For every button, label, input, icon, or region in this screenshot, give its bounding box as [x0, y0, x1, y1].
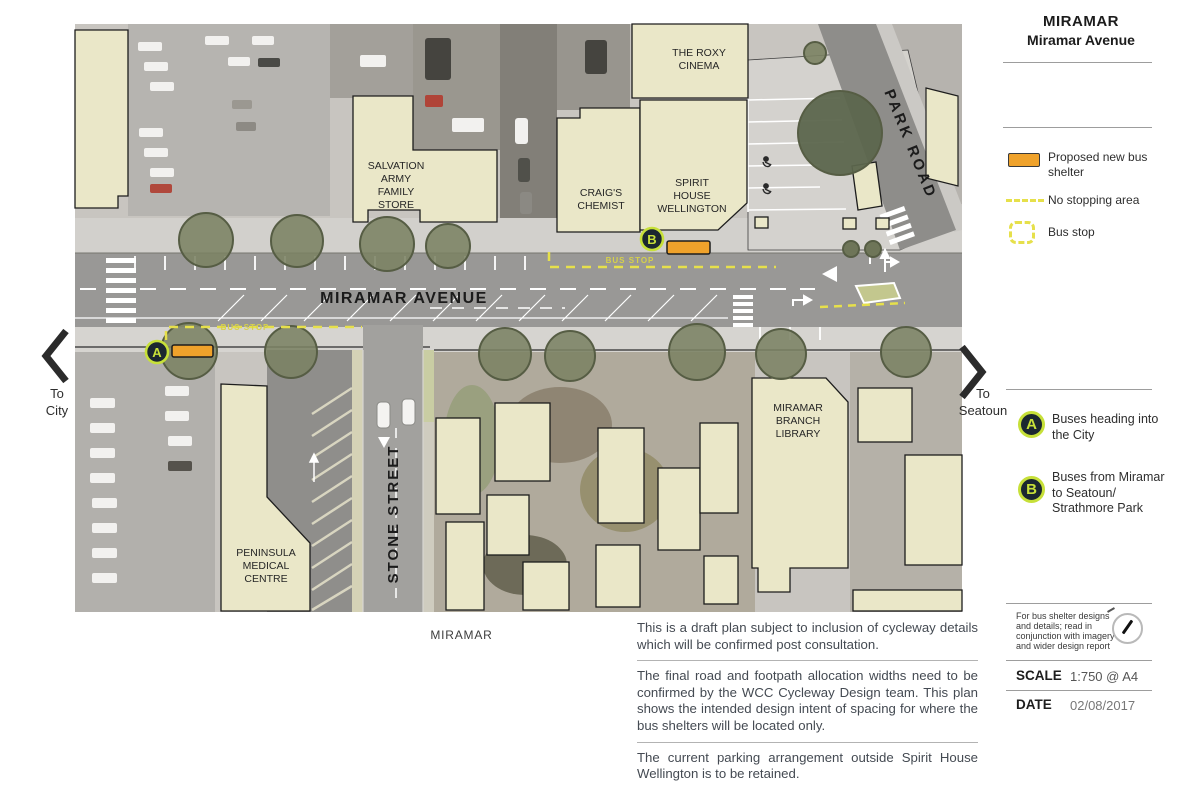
route-a-legend-marker: A — [1018, 411, 1045, 438]
svg-text:CHEMIST: CHEMIST — [577, 200, 625, 212]
label-spirit: SPIRIT — [675, 177, 709, 189]
route-marker-a: A — [146, 341, 168, 363]
legend-no-stopping-label: No stopping area — [1048, 193, 1160, 208]
svg-text:CINEMA: CINEMA — [679, 60, 720, 72]
building-craigs-chemist — [557, 108, 640, 232]
label-salvation: SALVATION — [368, 160, 425, 172]
scale-label: SCALE — [1016, 668, 1062, 683]
planter — [755, 217, 768, 228]
to-city-label: To City — [35, 385, 79, 419]
page-title: MIRAMAR Miramar Avenue — [1000, 12, 1162, 50]
svg-text:B: B — [647, 232, 656, 247]
legend-shelter-label: Proposed new bus shelter — [1048, 150, 1160, 180]
label-miramar-avenue: MIRAMAR AVENUE — [320, 290, 488, 307]
proposed-shelter-b — [667, 241, 710, 254]
svg-text:BRANCH: BRANCH — [776, 415, 820, 427]
shelter-design-note: For bus shelter designs and details; rea… — [1016, 611, 1120, 651]
label-stone-street: STONE STREET — [385, 445, 402, 584]
planter — [876, 218, 889, 229]
legend-bus-stop-label: Bus stop — [1048, 225, 1160, 240]
divider — [1003, 62, 1152, 63]
bus-stop-text-north: BUS STOP — [606, 256, 655, 265]
divider — [637, 660, 978, 661]
label-craigs: CRAIG'S — [580, 187, 622, 199]
note-paragraph-3: The current parking arrangement outside … — [637, 750, 978, 783]
legend-no-stopping-icon — [1006, 199, 1044, 202]
note-paragraph-2: The final road and footpath allocation w… — [637, 668, 978, 734]
svg-text:CENTRE: CENTRE — [244, 573, 287, 585]
svg-text:FAMILY: FAMILY — [378, 186, 415, 198]
date-value: 02/08/2017 — [1070, 698, 1135, 713]
svg-text:MEDICAL: MEDICAL — [243, 560, 290, 572]
proposed-shelter-a — [172, 345, 213, 357]
divider — [1006, 690, 1152, 691]
building-top-left — [75, 30, 128, 208]
divider — [1006, 660, 1152, 661]
bus-stop-text-south: BUS STOP — [221, 323, 270, 332]
route-a-legend-label: Buses heading into the City — [1052, 412, 1167, 443]
scale-value: 1:750 @ A4 — [1070, 669, 1138, 684]
route-b-legend-label: Buses from Miramar to Seatoun/ Strathmor… — [1052, 470, 1170, 517]
svg-text:A: A — [152, 345, 162, 360]
route-marker-b: B — [641, 228, 663, 250]
label-library: MIRAMAR — [773, 402, 823, 414]
svg-text:ARMY: ARMY — [381, 173, 411, 185]
divider — [1003, 127, 1152, 128]
legend-shelter-swatch — [1008, 153, 1040, 167]
planter — [843, 218, 856, 229]
legend-bus-stop-icon — [1009, 221, 1035, 244]
route-b-legend-marker: B — [1018, 476, 1045, 503]
divider — [1006, 603, 1152, 604]
date-label: DATE — [1016, 697, 1052, 712]
divider — [1006, 389, 1152, 390]
svg-text:LIBRARY: LIBRARY — [776, 428, 821, 440]
suburb-caption: MIRAMAR — [399, 628, 524, 642]
svg-text:HOUSE: HOUSE — [673, 190, 710, 202]
north-arrow-icon — [1112, 613, 1143, 644]
to-city-arrow-icon — [46, 331, 66, 381]
plan-notes: This is a draft plan subject to inclusio… — [637, 620, 978, 783]
svg-text:WELLINGTON: WELLINGTON — [657, 203, 726, 215]
to-seatoun-label: To Seatoun — [940, 385, 1026, 419]
label-peninsula: PENINSULA — [236, 547, 296, 559]
label-roxy: THE ROXY — [672, 47, 726, 59]
note-paragraph-1: This is a draft plan subject to inclusio… — [637, 620, 978, 653]
svg-text:STORE: STORE — [378, 199, 414, 211]
divider — [637, 742, 978, 743]
